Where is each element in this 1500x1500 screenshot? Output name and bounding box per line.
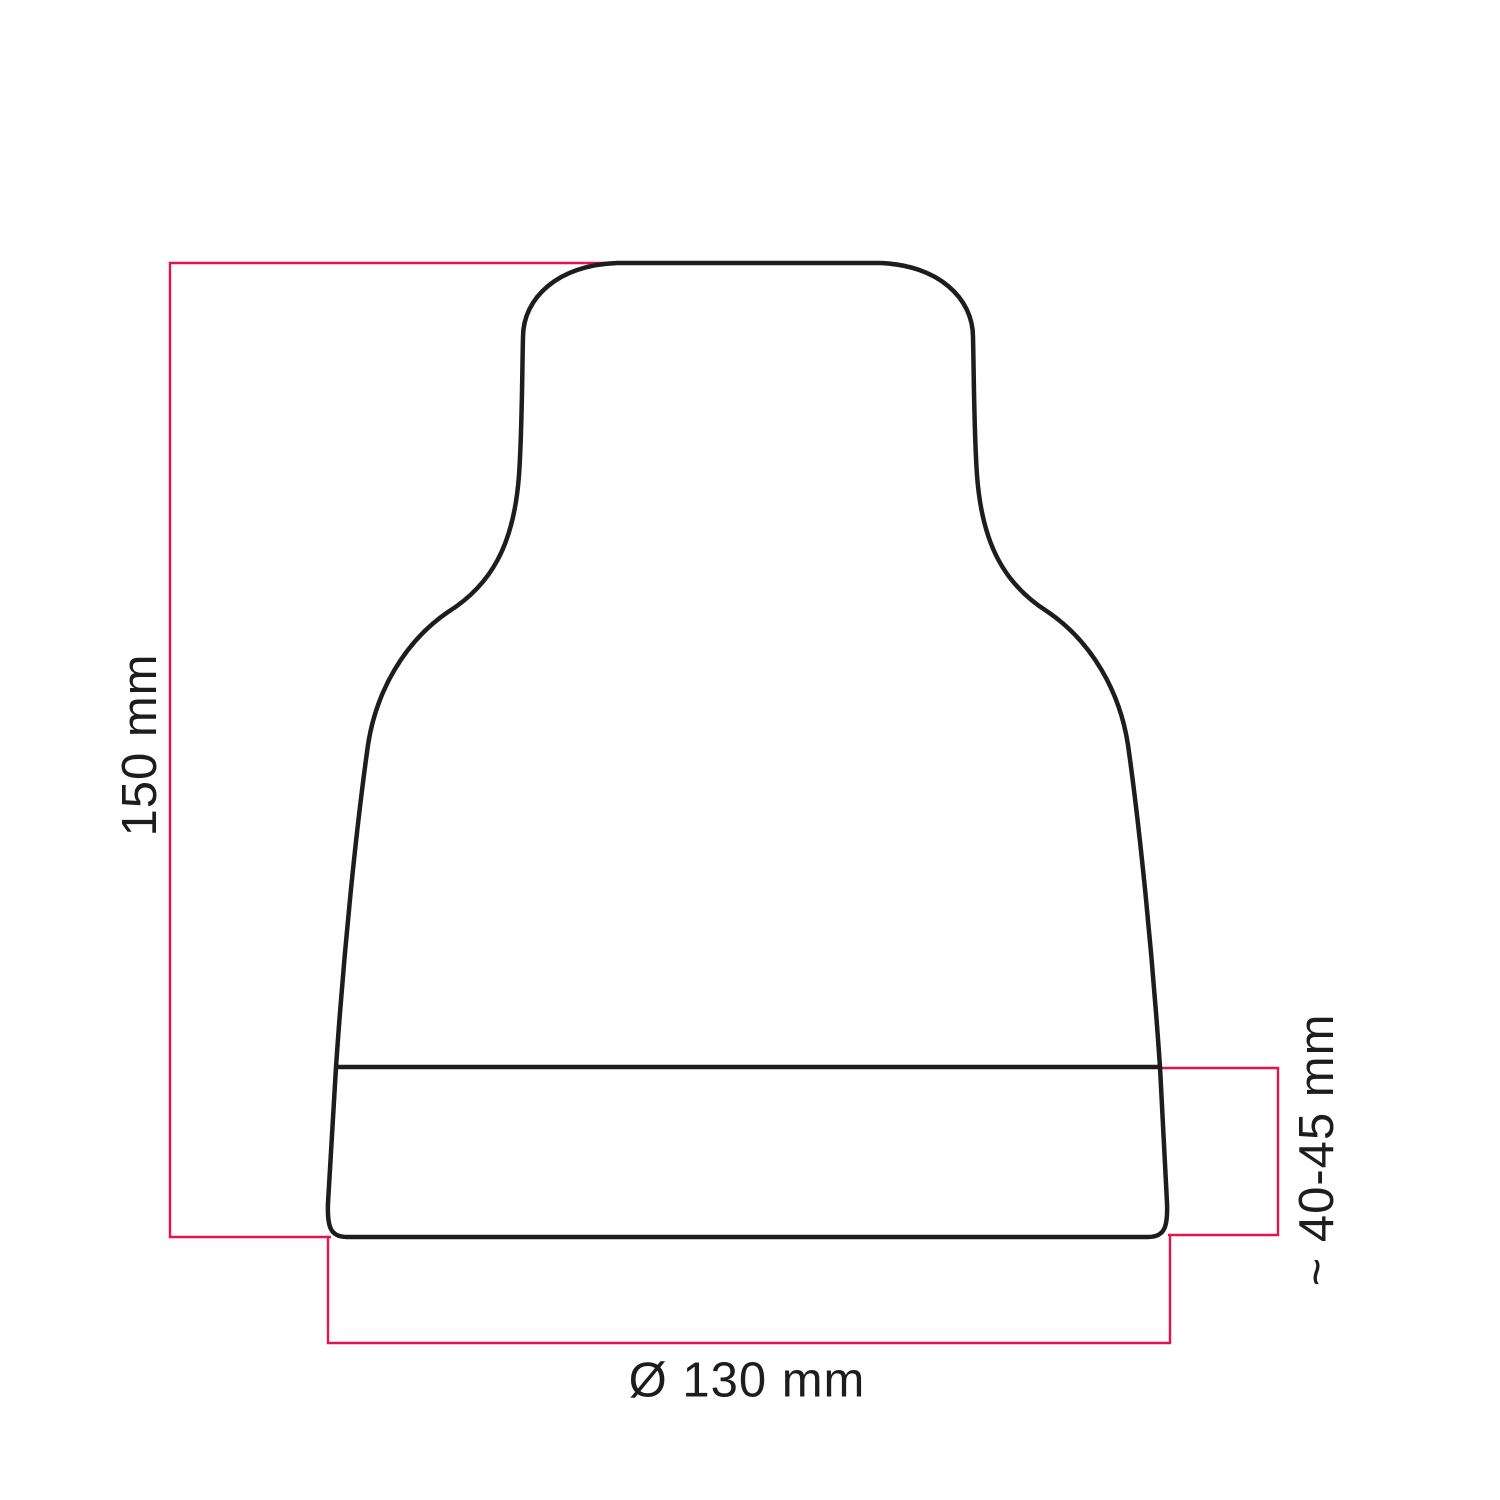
shade-outline: [328, 263, 1167, 1237]
dimension-diagram: 150 mm Ø 130 mm ~ 40-45 mm: [0, 0, 1500, 1500]
height-dimension-label: 150 mm: [113, 653, 167, 836]
base-height-dimension-line: [1158, 1068, 1278, 1235]
diameter-dimension-label: Ø 130 mm: [629, 1354, 866, 1408]
diameter-dimension-line: [328, 1236, 1170, 1343]
base-height-dimension-label: ~ 40-45 mm: [1290, 1014, 1344, 1287]
height-dimension-line: [170, 263, 612, 1237]
diagram-svg: 150 mm Ø 130 mm ~ 40-45 mm: [0, 0, 1500, 1500]
